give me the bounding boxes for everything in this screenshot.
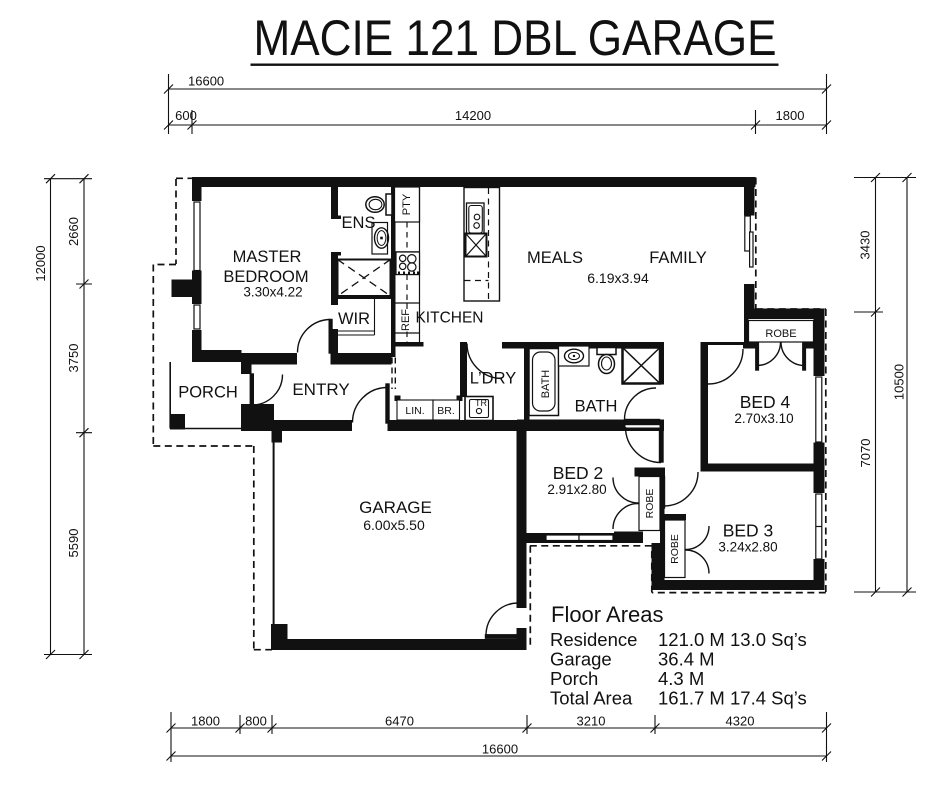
- svg-text:REF: REF: [400, 309, 412, 331]
- svg-text:6.19x3.94: 6.19x3.94: [587, 270, 649, 286]
- svg-text:BATH: BATH: [540, 370, 552, 399]
- svg-text:800: 800: [245, 714, 267, 729]
- svg-text:2.91x2.80: 2.91x2.80: [547, 482, 606, 497]
- svg-text:3.24x2.80: 3.24x2.80: [718, 540, 777, 555]
- svg-text:ROBE: ROBE: [644, 489, 656, 519]
- svg-text:3.30x4.22: 3.30x4.22: [243, 285, 302, 300]
- svg-text:BR.: BR.: [437, 405, 455, 417]
- svg-text:BED 2: BED 2: [553, 463, 604, 483]
- svg-text:BEDROOM: BEDROOM: [223, 268, 308, 286]
- svg-text:Residence: Residence: [550, 629, 637, 650]
- svg-text:36.4 M: 36.4 M: [658, 649, 715, 670]
- svg-text:121.0 M 13.0 Sq’s: 121.0 M 13.0 Sq’s: [658, 629, 807, 650]
- svg-text:6.00x5.50: 6.00x5.50: [363, 517, 425, 533]
- svg-text:4.3 M: 4.3 M: [658, 668, 704, 689]
- svg-text:ENS: ENS: [342, 214, 376, 232]
- svg-text:MASTER: MASTER: [233, 248, 302, 266]
- svg-text:12000: 12000: [33, 245, 48, 281]
- svg-text:BED 4: BED 4: [740, 392, 791, 412]
- svg-text:Floor Areas: Floor Areas: [551, 602, 664, 627]
- svg-text:PTY: PTY: [401, 193, 413, 215]
- svg-text:4320: 4320: [726, 714, 755, 729]
- svg-text:6470: 6470: [385, 714, 414, 729]
- svg-text:KITCHEN: KITCHEN: [415, 310, 483, 327]
- svg-text:3750: 3750: [66, 344, 81, 373]
- svg-text:Total Area: Total Area: [550, 688, 633, 709]
- svg-text:7070: 7070: [858, 439, 873, 468]
- svg-text:5590: 5590: [66, 529, 81, 558]
- svg-text:TR: TR: [475, 398, 487, 408]
- svg-text:2.70x3.10: 2.70x3.10: [734, 411, 793, 426]
- svg-text:1800: 1800: [191, 714, 220, 729]
- svg-text:600: 600: [175, 108, 197, 123]
- svg-text:BED 3: BED 3: [723, 521, 774, 541]
- svg-text:ENTRY: ENTRY: [292, 380, 349, 399]
- svg-text:Garage: Garage: [550, 649, 612, 670]
- svg-text:MEALS: MEALS: [527, 249, 583, 267]
- svg-text:MACIE 121 DBL GARAGE: MACIE 121 DBL GARAGE: [254, 10, 777, 66]
- svg-text:ROBE: ROBE: [669, 534, 681, 564]
- svg-text:14200: 14200: [455, 108, 491, 123]
- svg-text:L’DRY: L’DRY: [470, 370, 516, 388]
- svg-text:16600: 16600: [188, 74, 224, 89]
- svg-text:10500: 10500: [892, 364, 907, 400]
- svg-text:FAMILY: FAMILY: [649, 249, 706, 267]
- svg-text:GARAGE: GARAGE: [359, 498, 432, 517]
- svg-text:2660: 2660: [66, 217, 81, 246]
- svg-text:1800: 1800: [776, 108, 805, 123]
- svg-text:3210: 3210: [577, 714, 606, 729]
- svg-text:Porch: Porch: [550, 668, 598, 689]
- svg-text:LIN.: LIN.: [405, 405, 424, 417]
- svg-text:PORCH: PORCH: [178, 384, 238, 402]
- svg-text:161.7 M 17.4 Sq’s: 161.7 M 17.4 Sq’s: [658, 688, 807, 709]
- svg-text:BATH: BATH: [575, 398, 618, 416]
- svg-text:ROBE: ROBE: [765, 328, 796, 340]
- svg-text:WIR: WIR: [338, 310, 370, 328]
- svg-text:3430: 3430: [858, 231, 873, 260]
- svg-text:16600: 16600: [482, 742, 518, 757]
